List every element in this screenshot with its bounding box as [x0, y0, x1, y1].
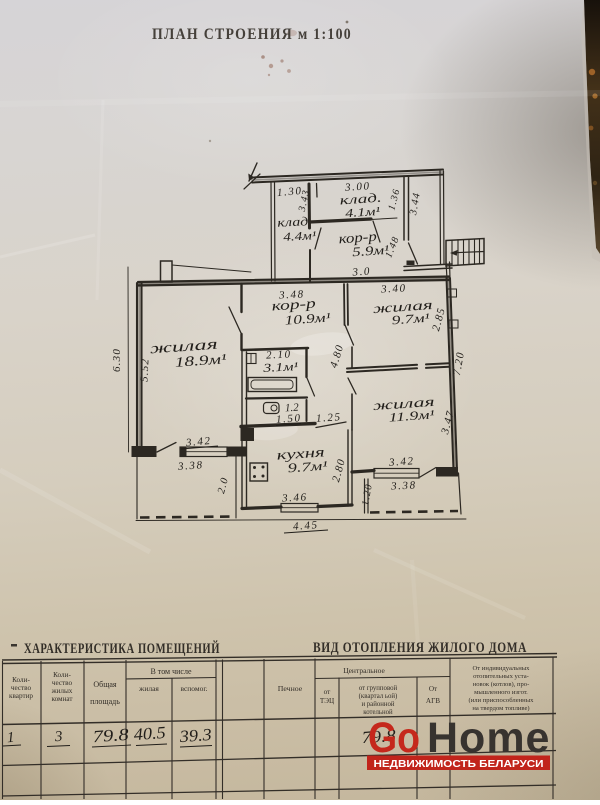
svg-text:отопительных уста-: отопительных уста- — [473, 673, 529, 680]
svg-text:Коли-: Коли- — [53, 671, 71, 679]
svg-text:от групповой: от групповой — [359, 685, 398, 692]
svg-text:3.42: 3.42 — [388, 455, 415, 469]
svg-text:ТЭЦ: ТЭЦ — [320, 697, 335, 705]
svg-text:и районной: и районной — [361, 701, 394, 708]
svg-text:От индивидуальных: От индивидуальных — [473, 665, 531, 672]
svg-text:5.52: 5.52 — [138, 358, 151, 383]
svg-text:3.48: 3.48 — [278, 288, 305, 301]
svg-text:жилая: жилая — [138, 684, 159, 693]
svg-text:2.0: 2.0 — [216, 476, 231, 495]
svg-text:3.38: 3.38 — [177, 459, 204, 473]
svg-text:1: 1 — [6, 730, 15, 746]
svg-text:3: 3 — [53, 729, 63, 746]
svg-text:на твердом топливе): на твердом топливе) — [472, 705, 529, 712]
svg-text:79.8: 79.8 — [92, 725, 130, 747]
svg-text:квартир: квартир — [9, 692, 33, 700]
svg-text:Коли-: Коли- — [12, 676, 30, 684]
svg-text:3.44: 3.44 — [408, 191, 423, 217]
svg-text:1.25: 1.25 — [316, 411, 342, 425]
svg-text:3.00: 3.00 — [344, 180, 371, 194]
svg-text:чество: чество — [52, 679, 73, 687]
svg-text:6.30: 6.30 — [111, 348, 123, 372]
svg-text:(или приспособленных: (или приспособленных — [469, 697, 535, 704]
svg-text:9.7м¹: 9.7м¹ — [391, 311, 430, 328]
svg-text:вспомог.: вспомог. — [180, 684, 207, 693]
svg-text:ПЛАН СТРОЕНИЯ м 1:100: ПЛАН СТРОЕНИЯ м 1:100 — [152, 26, 352, 43]
svg-text:клад: клад — [277, 214, 309, 230]
svg-text:11.9м¹: 11.9м¹ — [388, 407, 435, 424]
svg-text:2.80: 2.80 — [330, 457, 348, 483]
svg-text:3.40: 3.40 — [380, 282, 407, 295]
svg-text:3.46: 3.46 — [281, 491, 308, 504]
svg-text:чество: чество — [11, 684, 32, 692]
svg-text:Home: Home — [427, 714, 550, 762]
svg-text:Общая: Общая — [93, 680, 117, 689]
svg-text:мышленного изгот.: мышленного изгот. — [474, 689, 528, 696]
svg-text:10.9м¹: 10.9м¹ — [284, 309, 331, 327]
svg-text:комнат: комнат — [51, 695, 73, 703]
svg-text:40.5: 40.5 — [133, 723, 166, 744]
svg-text:Центральное: Центральное — [343, 666, 385, 675]
svg-text:(квартал ьой): (квартал ьой) — [359, 693, 398, 700]
svg-text:39.3: 39.3 — [178, 725, 212, 746]
svg-text:1.36: 1.36 — [386, 187, 402, 211]
svg-text:новок (котлов), про-: новок (котлов), про- — [473, 681, 530, 688]
svg-text:4.4м¹: 4.4м¹ — [283, 228, 317, 244]
svg-text:от: от — [324, 688, 331, 696]
svg-text:1.20: 1.20 — [360, 483, 375, 507]
svg-text:2.10: 2.10 — [266, 348, 292, 361]
svg-text:ХАРАКТЕРИСТИКА ПОМЕЩЕНИЙ: ХАРАКТЕРИСТИКА ПОМЕЩЕНИЙ — [24, 640, 220, 657]
svg-text:18.9м¹: 18.9м¹ — [174, 352, 227, 371]
svg-text:НЕДВИЖИМОСТЬ БЕЛАРУСИ: НЕДВИЖИМОСТЬ БЕЛАРУСИ — [374, 759, 544, 770]
svg-text:1.48: 1.48 — [383, 235, 402, 260]
svg-text:площадь: площадь — [90, 697, 120, 706]
svg-text:Печное: Печное — [278, 684, 303, 693]
svg-text:9.7м¹: 9.7м¹ — [287, 458, 328, 476]
svg-text:4.1м¹: 4.1м¹ — [345, 204, 381, 220]
svg-text:3.0: 3.0 — [351, 265, 371, 278]
svg-text:От: От — [429, 685, 438, 693]
svg-text:жилых: жилых — [51, 687, 73, 695]
svg-text:В том числе: В том числе — [150, 667, 191, 676]
svg-text:3.38: 3.38 — [390, 479, 417, 492]
svg-text:Go: Go — [368, 714, 420, 762]
svg-text:АГВ: АГВ — [426, 697, 440, 705]
